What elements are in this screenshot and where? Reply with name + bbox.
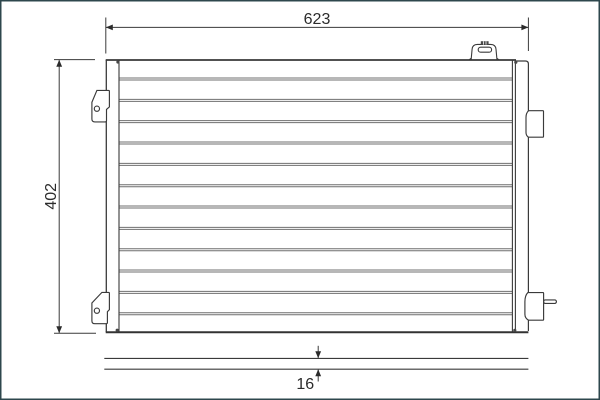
svg-text:402: 402 <box>43 183 60 210</box>
svg-text:623: 623 <box>304 11 331 28</box>
svg-text:16: 16 <box>296 376 314 393</box>
